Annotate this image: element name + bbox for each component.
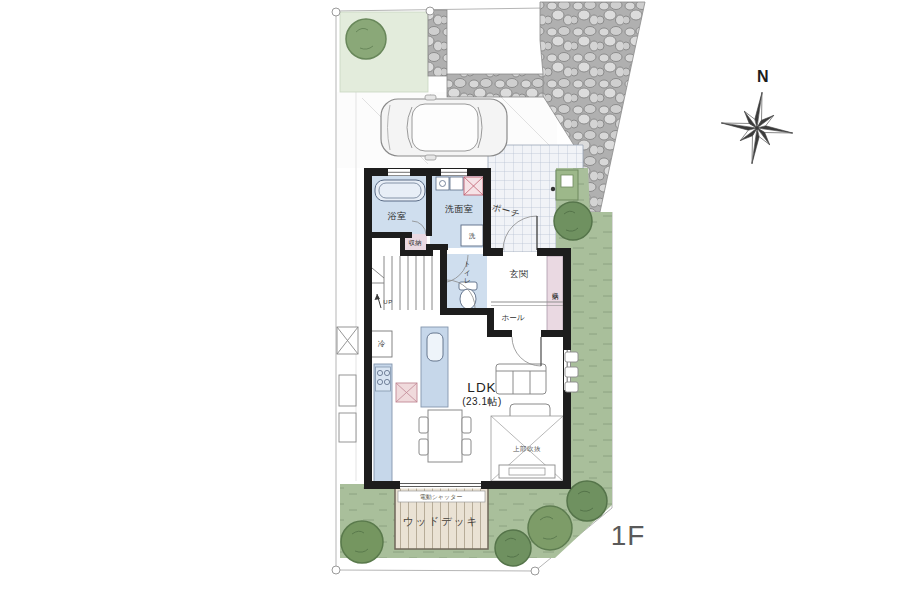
tree	[346, 19, 386, 59]
floorplan-drawing	[0, 0, 900, 600]
ac-units	[337, 327, 358, 442]
tv-board	[499, 465, 555, 478]
room-label-toilet: トイレ	[464, 256, 471, 281]
sofa	[496, 364, 546, 394]
tree	[528, 506, 572, 550]
shutter-label: 電動シャッター	[420, 494, 463, 500]
car	[381, 95, 507, 160]
room-label-washroom: 洗面室	[445, 205, 474, 214]
tree	[341, 521, 383, 563]
room-label-entrance: 玄関	[510, 270, 529, 279]
room-label-bath: 浴室	[388, 212, 407, 221]
bathtub	[375, 180, 425, 201]
toilet-fixture	[459, 282, 477, 309]
room-label-storage-hall: 収納	[409, 240, 422, 247]
room-label-entrance-storage: 収納	[552, 287, 559, 289]
area-label-void: 上部吹抜	[513, 446, 541, 453]
stairs-up-label: UP	[383, 299, 392, 305]
deck-label: ウッドデッキ	[403, 516, 479, 527]
kitchen-counter	[374, 364, 392, 482]
tree	[567, 481, 607, 521]
room-label-fridge: 冷	[378, 340, 386, 348]
room-label-washer: 洗	[469, 233, 476, 240]
room-label-ldk-size: (23.1帖)	[462, 397, 502, 407]
room-label-hall: ホール	[502, 314, 525, 322]
compass-north-label: N	[757, 69, 769, 85]
room-label-ldk: LDK	[467, 381, 496, 395]
floor-hatch	[396, 383, 417, 402]
step-stones	[565, 352, 578, 392]
tree	[495, 530, 531, 566]
entrance-storage-floor	[547, 256, 563, 332]
tree	[554, 202, 592, 240]
floor-label: 1F	[611, 522, 646, 550]
compass-rose	[716, 87, 797, 168]
kitchen-island	[421, 327, 448, 407]
floorplan-page: 浴室 洗面室 洗 収納 トイレ 玄関 ホール 収納 ポーチ 冷 LDK (23.…	[0, 0, 900, 600]
washing-machine	[464, 177, 483, 195]
